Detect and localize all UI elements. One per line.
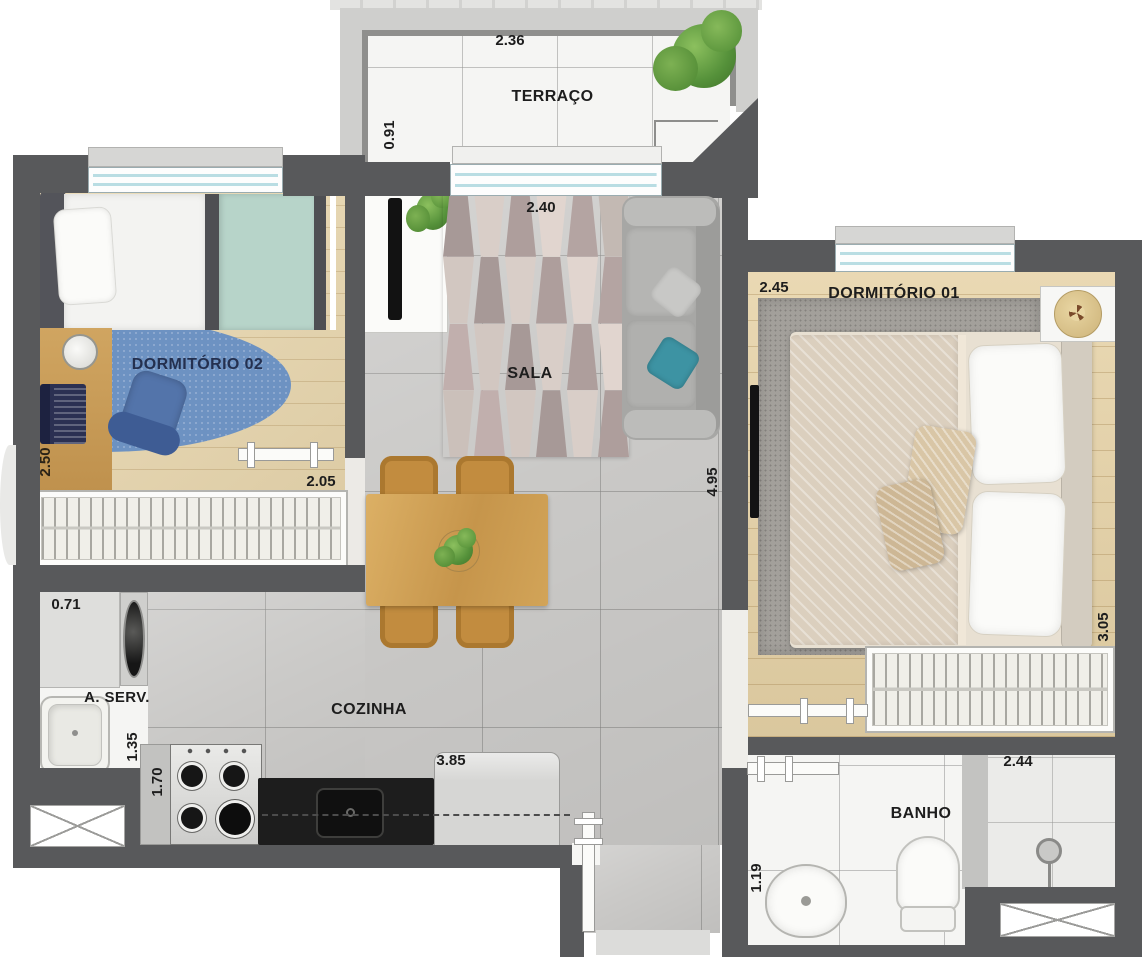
- sala-rug-tile: [443, 390, 474, 457]
- laundry-width-dim: 0.71: [44, 597, 88, 612]
- bed1-pillow-1: [968, 342, 1067, 485]
- wall-corridor-left: [560, 865, 584, 957]
- wall-top-bedroom2-a: [13, 155, 88, 193]
- sofa: [622, 196, 720, 440]
- wall-sala-top-a: [365, 162, 450, 196]
- entry-door-hinge-2: [574, 838, 603, 845]
- sala-rug-tile: [567, 190, 598, 257]
- terrace-width-dim: 2.36: [485, 33, 535, 48]
- terrace-parapet-left: [340, 8, 362, 162]
- sala-rug-tile: [474, 190, 505, 257]
- bedroom1-bed: [790, 332, 1092, 648]
- sala-rug-tile: [474, 390, 505, 457]
- terrace-slider-sill: [452, 146, 662, 164]
- sala-rug-tile: [567, 390, 598, 457]
- bedroom1-wardrobe: [865, 646, 1115, 733]
- bedroom2-label: DORMITÓRIO 02: [130, 357, 265, 373]
- kitchen-label: COZINHA: [328, 702, 410, 718]
- sofa-arm-top: [624, 198, 716, 226]
- wall-bedroom2-sala: [345, 158, 365, 458]
- stove-burner-4: [219, 803, 251, 835]
- bed-blanket: [219, 194, 314, 330]
- bedroom1-door-hinge-2: [846, 698, 854, 724]
- bedroom1-label: DORMITÓRIO 01: [826, 286, 962, 302]
- shower-divider: [962, 755, 988, 889]
- sala-label: SALA: [503, 366, 557, 382]
- bedroom2-window-sill: [88, 147, 283, 167]
- sala-rug-tile: [505, 257, 536, 324]
- shaft-bottom-right: [1000, 903, 1115, 937]
- washer-door: [123, 600, 145, 678]
- bedroom2-threshold: [345, 456, 365, 568]
- sofa-backrest: [696, 202, 720, 434]
- bed-foot-stripe: [314, 194, 326, 330]
- bathroom-depth-dim: 1.19: [749, 854, 765, 902]
- wardrobe1-hangers: [872, 653, 1108, 726]
- laundry-label: A. SERV.: [76, 690, 158, 705]
- wall-left: [13, 155, 40, 867]
- stove-burner-1: [181, 765, 203, 787]
- entry-door: [582, 812, 595, 932]
- terrace-label: TERRAÇO: [505, 89, 600, 105]
- stove-burner-3: [181, 807, 203, 829]
- shower-valve-stem: [1048, 862, 1051, 888]
- bedroom2-door-hinge-2: [310, 442, 318, 468]
- toilet-tank: [900, 906, 956, 932]
- wall-bedroom1-bathroom: [748, 737, 1142, 755]
- bedroom1-tv: [750, 385, 759, 518]
- bed-footboard: [330, 194, 336, 330]
- toilet-lid: [896, 836, 960, 912]
- wall-bedroom1-top-a: [748, 240, 835, 272]
- table-plant: [443, 535, 473, 565]
- desk-lamp: [62, 334, 98, 370]
- sala-rug-tile: [567, 324, 598, 391]
- wall-under-wardrobe2: [13, 565, 365, 592]
- sala-rug-tile: [505, 390, 536, 457]
- bathroom-door-hinge-2: [785, 756, 793, 782]
- floor-plan: TERRAÇO 2.36 0.91 DORMITÓRIO 02 2.50 2.0…: [0, 0, 1142, 957]
- shower-floor: [988, 755, 1118, 887]
- wall-sala-bedroom1: [722, 165, 748, 610]
- bathroom-label: BANHO: [888, 806, 954, 822]
- bathroom-basin-drain: [801, 896, 811, 906]
- shaft-bottom-left: [30, 805, 125, 847]
- desk-laptop: [40, 384, 86, 444]
- sala-rug-tile: [443, 324, 474, 391]
- bathroom-door-hinge-1: [757, 756, 765, 782]
- bedroom2-depth-dim: 2.50: [38, 438, 54, 486]
- laundry-depth-dim: 1.35: [125, 723, 141, 771]
- terrace-depth-dim: 0.91: [382, 111, 398, 159]
- terrace-plant: [672, 24, 736, 88]
- nightstand-lamp-center: [1069, 305, 1085, 321]
- bed-dark-stripe: [205, 194, 219, 330]
- sala-rug-tile: [443, 257, 474, 324]
- sala-depth-dim: 4.95: [705, 458, 721, 506]
- shower-valve: [1036, 838, 1062, 864]
- bedroom1-door-hinge-1: [800, 698, 808, 724]
- sala-rug: [443, 190, 629, 457]
- entry-door-hinge-1: [574, 818, 603, 825]
- sala-rug-tile: [443, 190, 474, 257]
- bedroom1-depth-dim: 3.05: [1096, 603, 1112, 651]
- wall-right: [1115, 240, 1142, 957]
- wall-hall-right: [722, 768, 748, 945]
- exterior-ledge: [0, 445, 16, 565]
- bedroom1-window-sill: [835, 226, 1015, 244]
- sofa-arm-bottom: [624, 410, 716, 438]
- terrace-parapet-inner-left: [362, 30, 368, 162]
- bedroom2-width-dim: 2.05: [298, 474, 344, 489]
- kitchen-width-dim: 3.85: [428, 753, 474, 768]
- kitchen-depth-dim: 1.70: [150, 758, 166, 806]
- wardrobe-hangers: [41, 497, 341, 560]
- bedroom2-window: [88, 167, 283, 193]
- sala-rug-tile: [567, 257, 598, 324]
- entry-landing: [596, 930, 710, 955]
- sala-rug-tile: [474, 257, 505, 324]
- sala-width-dim: 2.40: [518, 200, 564, 215]
- bedroom1-window: [835, 244, 1015, 272]
- sala-rug-tile: [474, 324, 505, 391]
- tv-screen: [388, 198, 402, 320]
- stove: [170, 744, 262, 845]
- bedroom2-wardrobe: [34, 490, 348, 567]
- bedroom1-door-threshold: [722, 610, 748, 768]
- bed1-pillow-2: [968, 490, 1067, 637]
- bathroom-width-dim: 2.44: [995, 754, 1041, 769]
- sala-rug-tile: [536, 257, 567, 324]
- bed-pillow: [53, 206, 118, 306]
- bedroom1-width-dim: 2.45: [751, 280, 797, 295]
- bedroom2-bed: [40, 192, 336, 332]
- hall-floor: [584, 845, 720, 933]
- cabinet-dashed-line: [262, 814, 570, 816]
- bedroom2-door-hinge-1: [247, 442, 255, 468]
- sala-rug-tile: [536, 390, 567, 457]
- stove-burner-2: [223, 765, 245, 787]
- bed1-headboard: [1061, 332, 1092, 648]
- laundry-sink-drain: [72, 730, 78, 736]
- terrace-slider-door: [450, 164, 662, 196]
- stove-knobs: [181, 748, 251, 754]
